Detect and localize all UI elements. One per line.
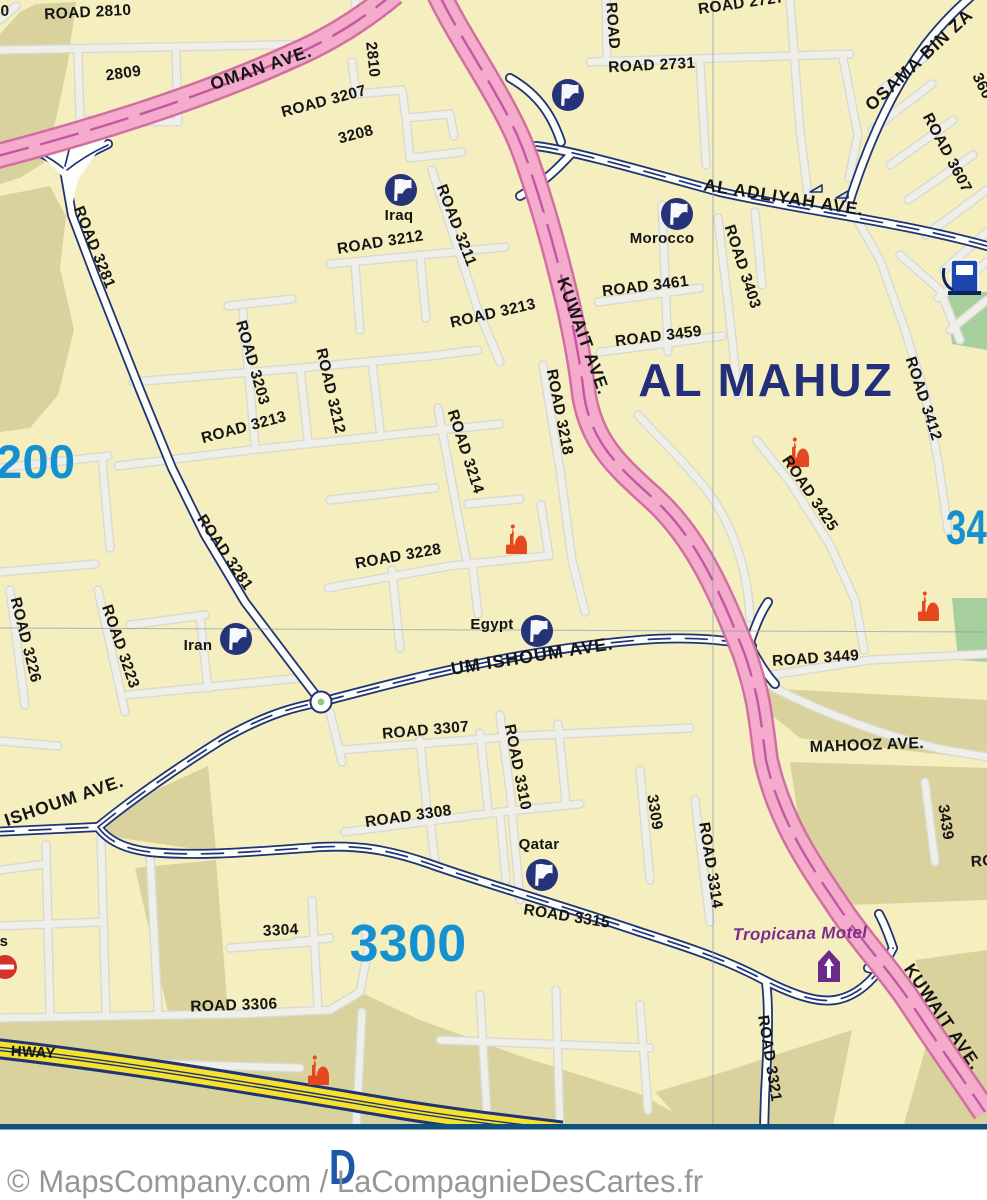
svg-text:Iraq: Iraq (385, 207, 414, 224)
svg-text:Morocco: Morocco (630, 230, 695, 247)
svg-text:AL MAHUZ: AL MAHUZ (638, 354, 893, 406)
svg-text:RO: RO (970, 852, 987, 871)
svg-text:s: s (0, 933, 8, 950)
svg-text:34: 34 (946, 502, 987, 555)
svg-text:ROAD 3306: ROAD 3306 (190, 995, 278, 1015)
svg-text:200: 200 (0, 435, 75, 488)
svg-text:3304: 3304 (263, 921, 300, 940)
svg-text:Egypt: Egypt (470, 616, 513, 633)
svg-text:ROAD: ROAD (602, 2, 622, 50)
svg-text:Qatar: Qatar (519, 836, 560, 853)
svg-text:HWAY: HWAY (10, 1043, 56, 1062)
svg-text:3300: 3300 (350, 915, 467, 973)
svg-text:Iran: Iran (184, 637, 213, 654)
svg-text:Tropicana Motel: Tropicana Motel (732, 923, 868, 944)
svg-text:0: 0 (1, 3, 10, 20)
svg-text:© MapsCompany.com / LaCompagni: © MapsCompany.com / LaCompagnieDesCartes… (7, 1163, 703, 1199)
